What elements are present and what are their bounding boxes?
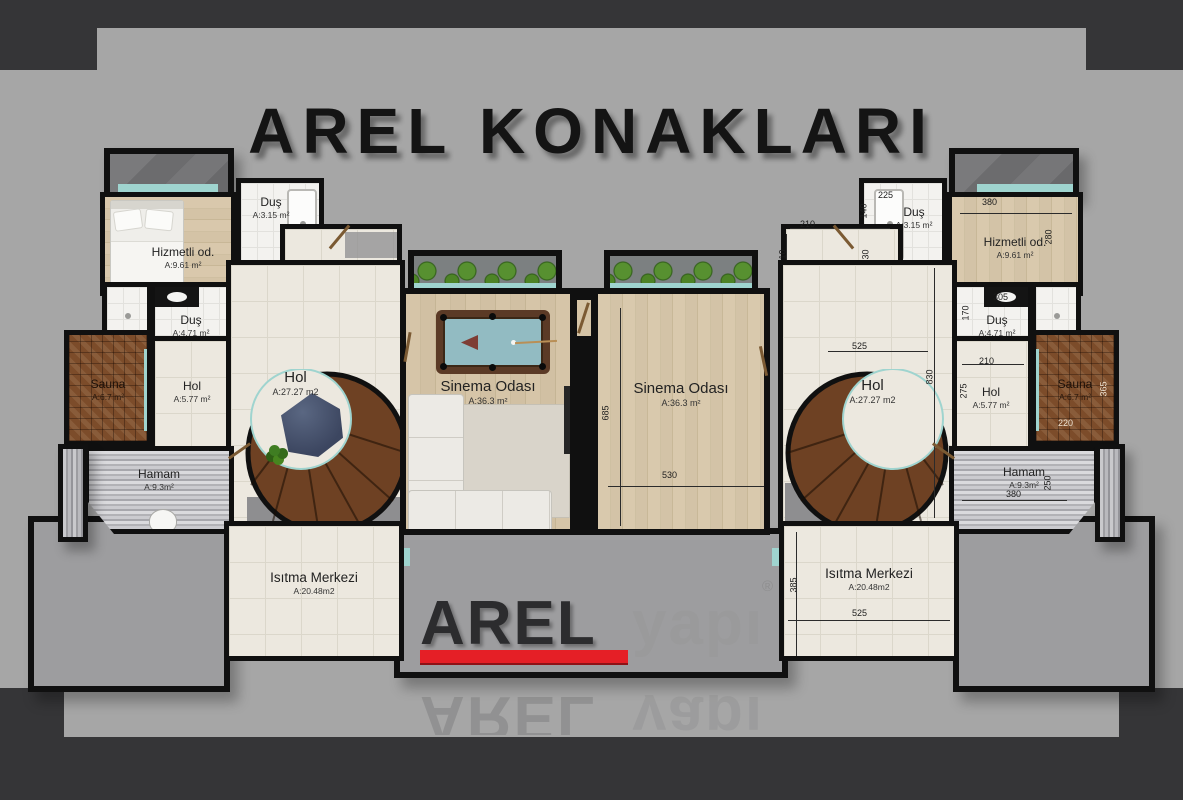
billiard-table bbox=[436, 310, 550, 374]
pocket-icon bbox=[539, 314, 546, 321]
bottom-right-corner-block bbox=[1119, 688, 1183, 800]
logo-text-yapi: yapı bbox=[632, 588, 764, 659]
room-hol-big-right: Hol A:27.27 m2 bbox=[778, 260, 957, 532]
shower-drain-icon bbox=[125, 313, 131, 319]
dim-line bbox=[608, 486, 766, 487]
dim-line bbox=[960, 213, 1072, 214]
cinema-divider-wall bbox=[574, 288, 594, 535]
top-right-corner-block bbox=[1086, 0, 1183, 70]
toilet-icon bbox=[149, 509, 177, 533]
dim-line bbox=[934, 268, 935, 518]
top-left-corner-block bbox=[0, 0, 97, 70]
dim-cinema-height: 685 bbox=[601, 405, 611, 420]
dim-hamam-right: 250 bbox=[1043, 475, 1053, 490]
logo-text-arel: AREL bbox=[420, 588, 597, 659]
bottom-band bbox=[0, 737, 1183, 800]
dim-dus-mid-top: 305 bbox=[993, 292, 1008, 302]
bed-pillow bbox=[144, 209, 174, 232]
dim-dus-mid-left: 170 bbox=[961, 305, 971, 320]
sauna-glass bbox=[1036, 349, 1039, 431]
tv-screen bbox=[564, 386, 572, 454]
terrace-right bbox=[953, 516, 1155, 692]
pocket-icon bbox=[539, 363, 546, 370]
bed-headboard bbox=[111, 201, 183, 209]
dim-sauna-bottom: 220 bbox=[1058, 418, 1073, 428]
balcony-right-glass bbox=[977, 184, 1077, 192]
pocket-icon bbox=[489, 364, 496, 371]
pocket-icon bbox=[489, 313, 496, 320]
registered-trademark-icon: ® bbox=[762, 578, 773, 595]
room-isitma-right: Isıtma Merkezi A:20.48m2 bbox=[779, 521, 959, 661]
pocket-icon bbox=[440, 363, 447, 370]
billiard-balls-icon bbox=[461, 335, 478, 350]
logo-red-bar bbox=[420, 650, 628, 663]
balcony-left bbox=[104, 148, 234, 198]
dim-line bbox=[828, 351, 928, 352]
room-label-dus-mid-left: Duş A:4.71 m² bbox=[155, 313, 227, 338]
pocket-icon bbox=[440, 314, 447, 321]
room-hamam-left: Hamam A:9.3m² bbox=[84, 446, 234, 534]
balcony-left-glass bbox=[118, 184, 218, 192]
room-sauna-left: Sauna A:6.7 m² bbox=[64, 330, 152, 446]
dim-line bbox=[962, 500, 1067, 501]
top-band bbox=[0, 0, 1183, 28]
vanity-counter bbox=[155, 287, 199, 307]
plant-icon bbox=[269, 445, 280, 456]
dim-isitma-bottom: 525 bbox=[852, 608, 867, 618]
dim-hizmetli-right: 280 bbox=[1044, 229, 1054, 244]
room-hizmetli-left: Hizmetli od. A:9.61 m² bbox=[100, 192, 236, 296]
dim-hol-small-left: 275 bbox=[959, 383, 969, 398]
room-hol-big-left: Hol A:27.27 m2 bbox=[226, 260, 405, 532]
bed bbox=[110, 200, 184, 292]
dim-cinema-width: 530 bbox=[662, 470, 677, 480]
dim-line bbox=[788, 620, 950, 621]
arel-yapi-logo: AREL yapı ® bbox=[406, 578, 806, 708]
room-cinema-left: Sinema Odası A:36.3 m² bbox=[400, 288, 576, 535]
room-label-sauna-left: Sauna A:6.7 m² bbox=[69, 377, 147, 402]
sauna-glass bbox=[144, 349, 147, 431]
dim-dus-top-left: 140 bbox=[859, 203, 869, 218]
sofa-section bbox=[408, 490, 552, 534]
dim-hizmetli-top: 380 bbox=[982, 197, 997, 207]
dim-as-bottom: 525 bbox=[852, 341, 867, 351]
terrace-left bbox=[28, 516, 230, 692]
room-label-hamam-left: Hamam A:9.3m² bbox=[89, 467, 229, 492]
cue-stick-icon bbox=[515, 340, 557, 344]
spiral-staircase-right bbox=[783, 369, 951, 532]
laundry-counter bbox=[345, 232, 397, 258]
room-label-cinema-right: Sinema Odası A:36.3 m² bbox=[598, 380, 764, 408]
room-isitma-left: Isıtma Merkezi A:20.48m2 bbox=[224, 521, 404, 661]
room-label-hol-small-left: Hol A:5.77 m² bbox=[155, 379, 229, 404]
logo-reflection: AREL yapı bbox=[406, 695, 806, 735]
hamam-bench-right bbox=[1095, 444, 1125, 542]
dim-sauna-right: 365 bbox=[1099, 381, 1109, 396]
room-cinema-right: Sinema Odası A:36.3 m² bbox=[592, 288, 770, 535]
dim-line bbox=[790, 228, 890, 229]
room-hamam-right: Hamam A:9.3m² bbox=[949, 446, 1099, 534]
room-hizmetli-right: Hizmetli od. A:9.61 m² bbox=[947, 192, 1083, 296]
hamam-bench-left bbox=[58, 444, 88, 542]
dim-line bbox=[962, 364, 1024, 365]
floor-plan-poster: { "title": "AREL KONAKLARI", "logo": {"a… bbox=[0, 0, 1183, 800]
bed-pillow bbox=[113, 208, 144, 232]
room-label-isitma-right: Isıtma Merkezi A:20.48m2 bbox=[784, 566, 954, 592]
balcony-right bbox=[949, 148, 1079, 198]
dim-hamam-width: 380 bbox=[1006, 489, 1021, 499]
room-label-dus-mid-right: Duş A:4.71 m² bbox=[966, 313, 1028, 338]
bottom-left-corner-block bbox=[0, 688, 64, 800]
shower-drain-icon bbox=[1054, 313, 1060, 319]
room-label-hamam-right: Hamam A:9.3m² bbox=[954, 465, 1094, 490]
dim-line bbox=[620, 308, 621, 526]
room-hol-small-left: Hol A:5.77 m² bbox=[150, 336, 234, 454]
room-label-hizmetli-right: Hizmetli od. A:9.61 m² bbox=[952, 235, 1078, 260]
sink-icon bbox=[167, 292, 187, 302]
dim-dus-top-width: 225 bbox=[878, 190, 893, 200]
room-label-isitma-left: Isıtma Merkezi A:20.48m2 bbox=[229, 570, 399, 596]
